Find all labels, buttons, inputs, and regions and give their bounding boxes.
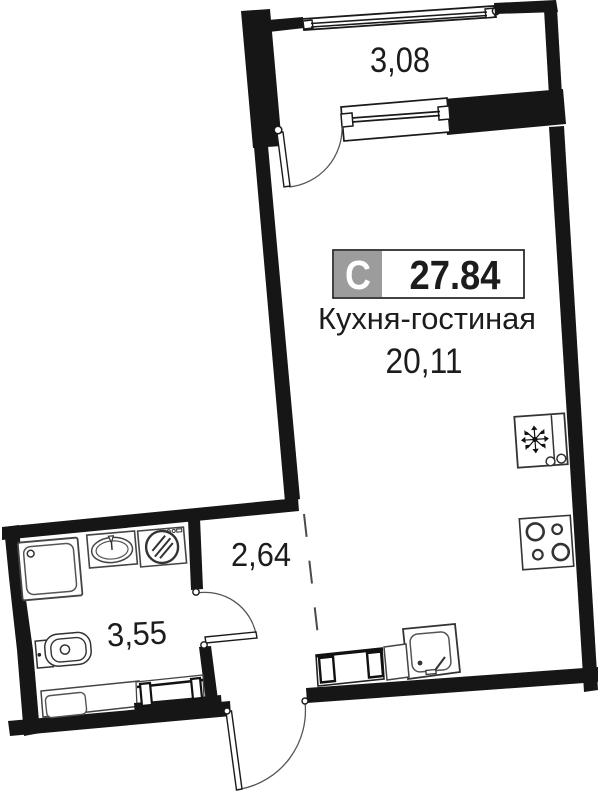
svg-text:27.84: 27.84: [410, 252, 501, 298]
svg-text:С: С: [345, 252, 371, 298]
svg-text:20,11: 20,11: [386, 342, 463, 381]
svg-text:Кухня-гостиная: Кухня-гостиная: [318, 301, 536, 336]
svg-text:3,55: 3,55: [106, 613, 168, 653]
svg-text:3,08: 3,08: [370, 41, 430, 80]
svg-text:2,64: 2,64: [231, 536, 291, 573]
